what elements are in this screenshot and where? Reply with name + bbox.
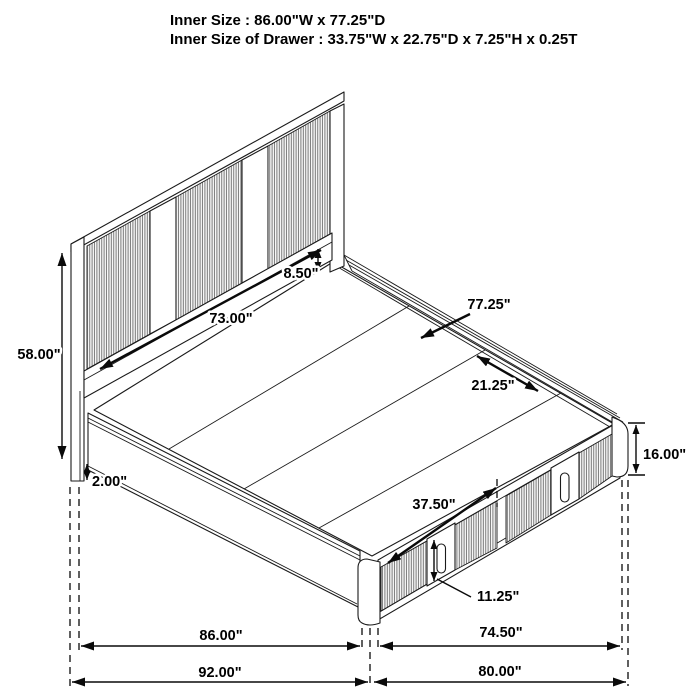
dimension-label-drawer-height: 11.25" xyxy=(477,589,519,605)
dimension-label-clearance: 2.00" xyxy=(92,474,127,490)
headboard-left-post xyxy=(71,237,84,481)
dimension-label-slat-width: 21.25" xyxy=(471,378,514,394)
dimension-label-rail-height: 8.50" xyxy=(283,266,318,282)
dimension-label-drawer-span: 37.50" xyxy=(412,497,455,513)
dimension-label-inner-width: 86.00" xyxy=(199,628,242,644)
dimension-label-footboard-height: 16.00" xyxy=(643,447,686,463)
dimension-label-inner-depth: 77.25" xyxy=(467,297,510,313)
header-drawer-size: Inner Size of Drawer : 33.75"W x 22.75"D… xyxy=(170,31,577,48)
header-inner-size: Inner Size : 86.00"W x 77.25"D xyxy=(170,12,385,29)
dimension-label-foot-depth: 74.50" xyxy=(479,625,522,641)
foot-post-left xyxy=(358,559,380,625)
foot-post-right xyxy=(612,417,628,477)
handle-slot xyxy=(437,544,446,573)
diagram-svg: Inner Size : 86.00"W x 77.25"D Inner Siz… xyxy=(0,0,700,700)
bed-dimension-diagram: Inner Size : 86.00"W x 77.25"D Inner Siz… xyxy=(0,0,700,700)
dimension-label-outer-width: 92.00" xyxy=(198,665,241,681)
handle-slot xyxy=(561,473,570,502)
dimension-label-headboard-width: 73.00" xyxy=(209,311,252,327)
leader-line-drawer-height xyxy=(437,579,471,597)
headboard-stile xyxy=(150,197,176,334)
dimension-label-outer-depth: 80.00" xyxy=(478,664,521,680)
headboard-stile xyxy=(242,146,268,283)
dimension-label-headboard-height: 58.00" xyxy=(17,347,60,363)
